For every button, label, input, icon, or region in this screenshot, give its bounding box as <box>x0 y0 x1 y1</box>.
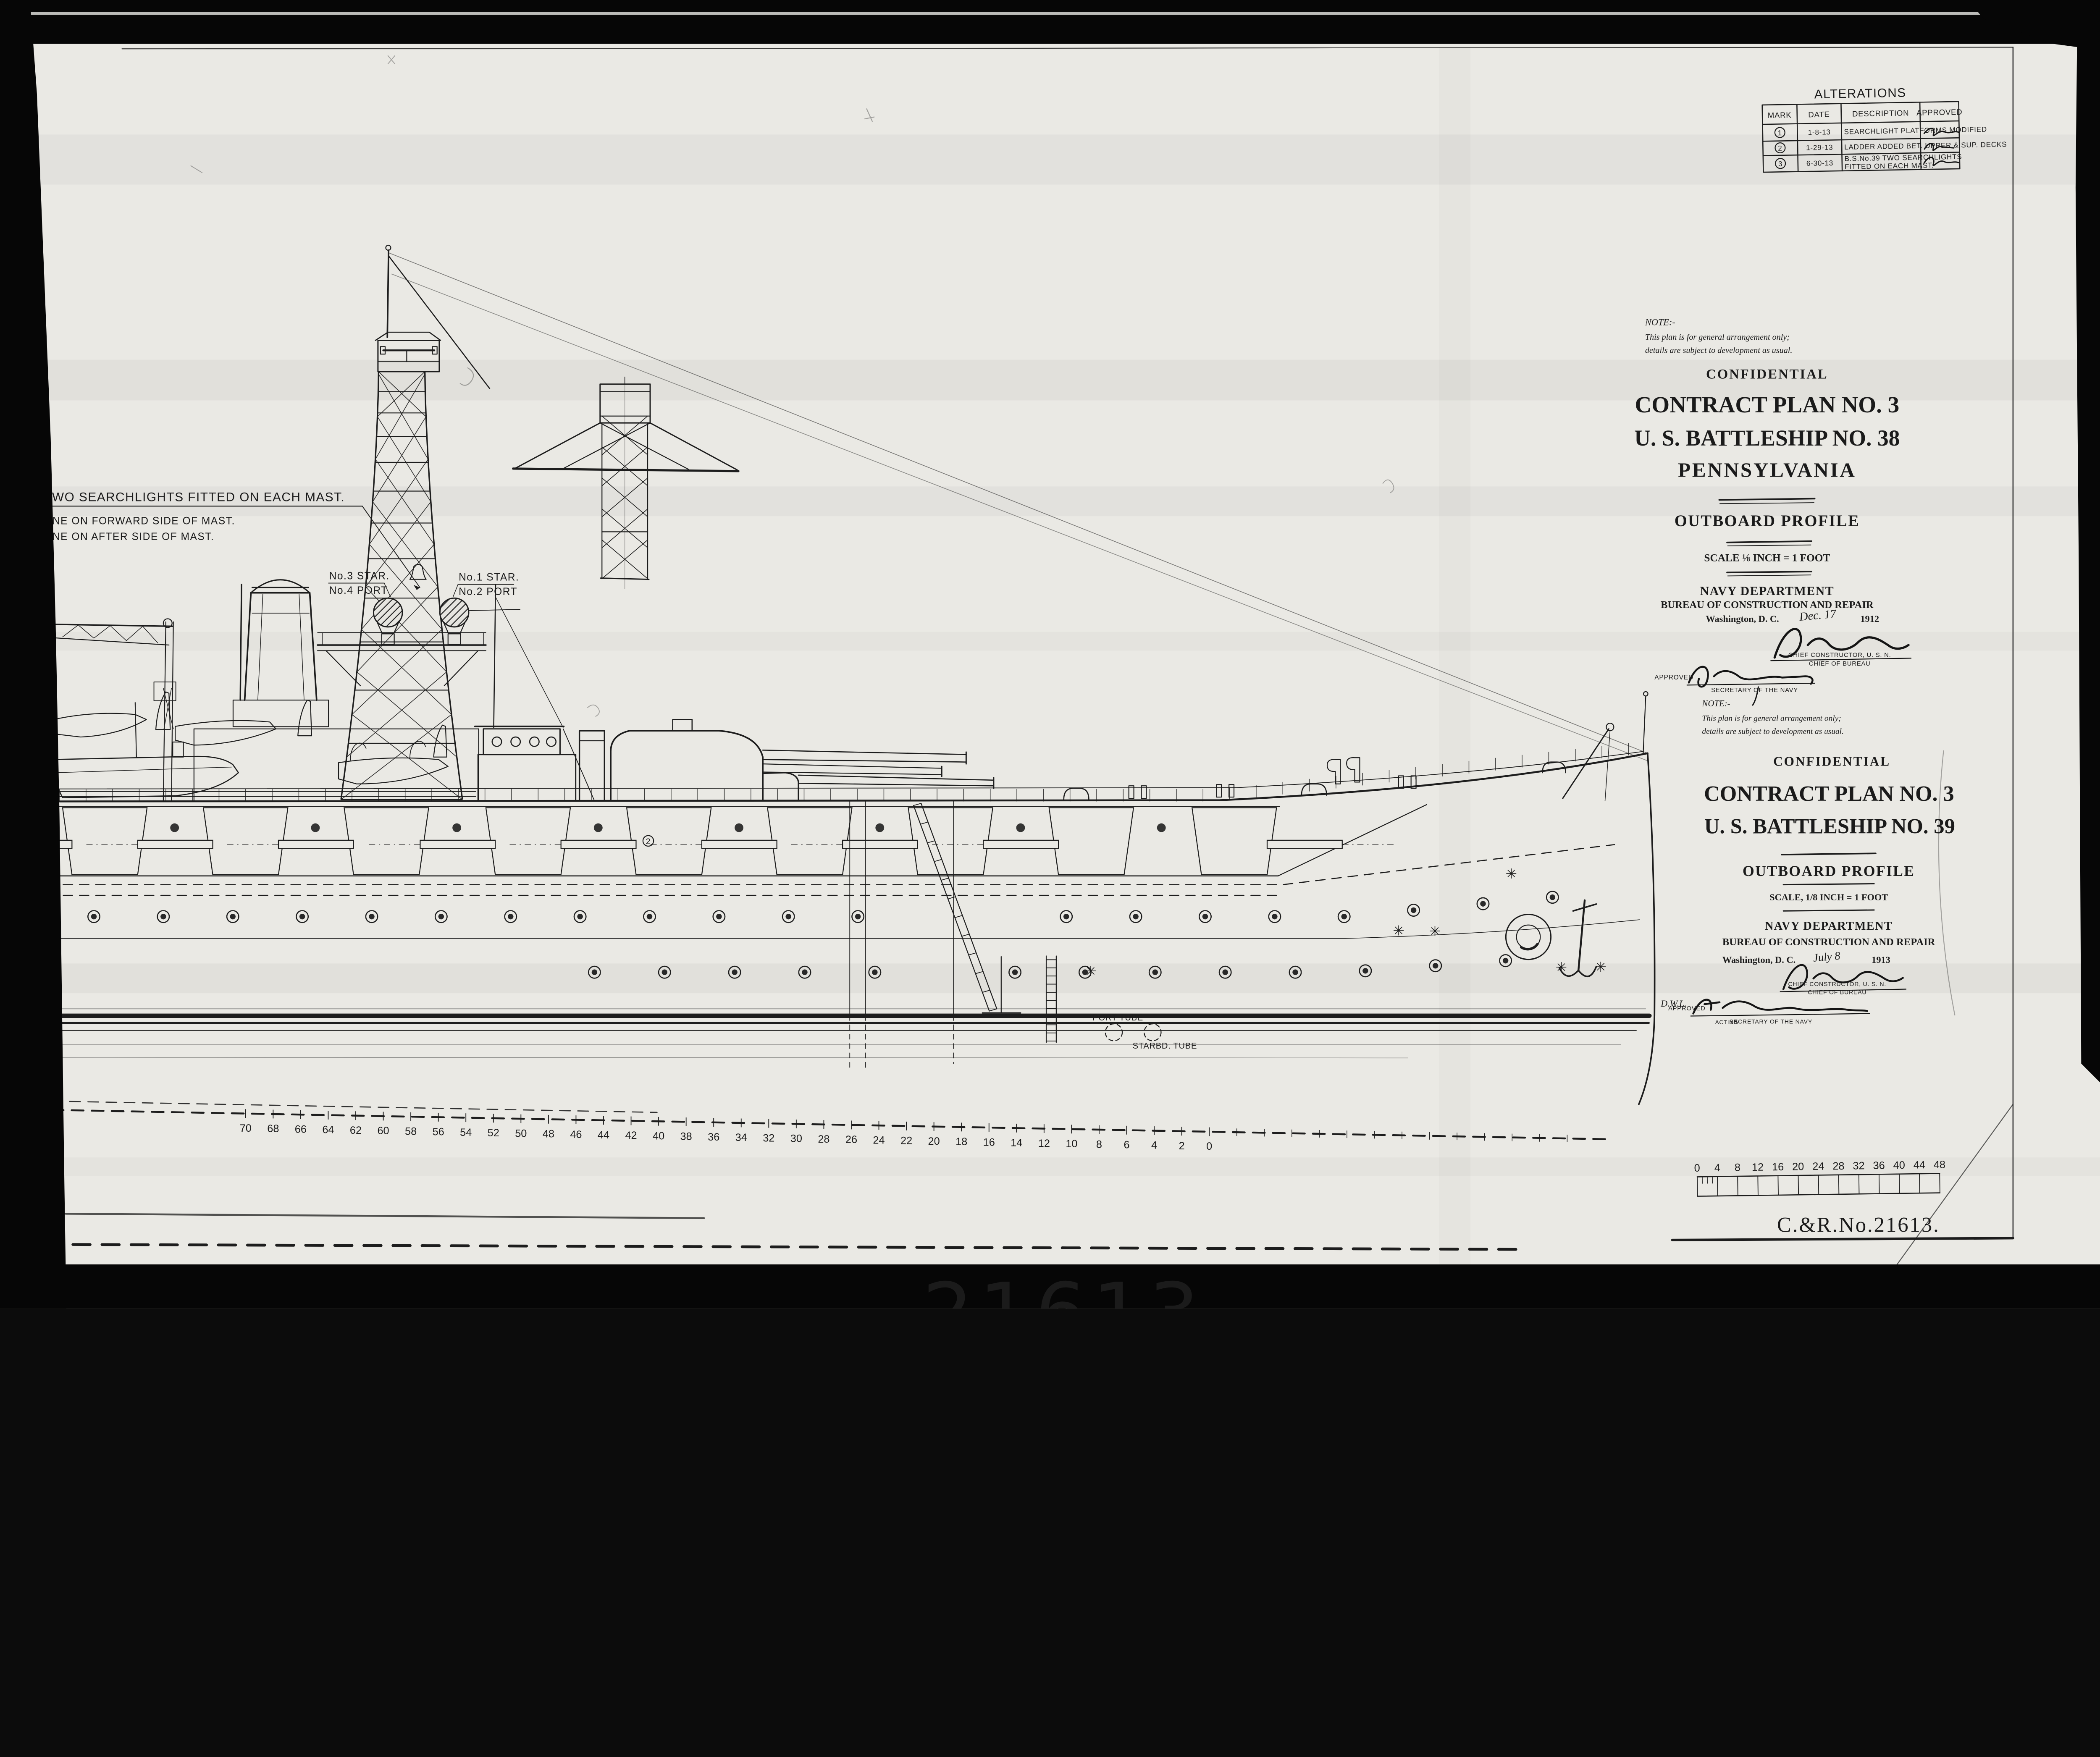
city-39: Washington, D. C. <box>1722 955 1795 965</box>
chief1-38: CHIEF CONSTRUCTOR, U. S. N. <box>1788 652 1891 658</box>
gunport-dot <box>452 823 461 832</box>
porthole-center <box>732 970 737 975</box>
porthole-center <box>716 914 722 919</box>
casemate-gun-barrel <box>983 840 1058 848</box>
mast-label-no4: No.4 PORT <box>329 585 388 596</box>
top-border <box>0 0 2100 44</box>
svg-text:✳: ✳ <box>1595 959 1606 975</box>
porthole-center <box>508 914 513 919</box>
station-number: 8 <box>1096 1138 1102 1150</box>
scanned-blueprint-sheet: 7068666462605856545250484644424038363432… <box>0 0 2100 1309</box>
note-line2-39: details are subject to development as us… <box>1702 727 1843 736</box>
svg-text:✳: ✳ <box>1506 866 1517 882</box>
station-number: 0 <box>1206 1141 1212 1152</box>
station-number: 60 <box>377 1125 389 1137</box>
name-pennsylvania: PENNSYLVANIA <box>1678 458 1856 481</box>
dept-39: NAVY DEPARTMENT <box>1765 920 1893 933</box>
station-number: 56 <box>433 1126 444 1138</box>
porthole-center <box>230 914 236 919</box>
station-number: 14 <box>1011 1137 1022 1149</box>
scale-number: 8 <box>1735 1162 1740 1173</box>
dept-38: NAVY DEPARTMENT <box>1700 584 1834 598</box>
alterations-title: ALTERATIONS <box>1814 86 1906 102</box>
svg-text:✳: ✳ <box>1085 963 1096 979</box>
porthole-center <box>592 970 597 975</box>
station-number: 20 <box>928 1135 940 1147</box>
note-heading-38: NOTE:- <box>1645 317 1675 328</box>
scale-number: 20 <box>1792 1161 1804 1172</box>
svg-text:1: 1 <box>1778 128 1782 137</box>
porthole-center <box>647 914 652 919</box>
casemate-gun-barrel <box>1267 840 1342 848</box>
gunport-dot <box>594 823 603 832</box>
port-tube-label: PORT TUBE <box>1092 1013 1143 1023</box>
note-line1-38: This plan is for general arrangement onl… <box>1645 333 1790 342</box>
casemate-gun-barrel <box>843 840 918 848</box>
station-number: 66 <box>295 1123 307 1135</box>
svg-text:FITTED ON EACH MAST.: FITTED ON EACH MAST. <box>1845 161 1934 171</box>
scale-tick <box>1940 1173 1940 1193</box>
plan-38: CONTRACT PLAN NO. 3 <box>1635 392 1900 417</box>
scale-tick <box>1859 1175 1859 1194</box>
porthole-center <box>802 970 807 975</box>
svg-text:✳: ✳ <box>1556 960 1567 976</box>
porthole-center <box>1433 963 1438 968</box>
svg-text:3: 3 <box>1778 160 1783 168</box>
city-38: Washington, D. C. <box>1706 614 1779 624</box>
porthole-center <box>438 914 444 919</box>
station-number: 68 <box>267 1123 279 1135</box>
station-number: 48 <box>543 1128 554 1140</box>
station-number: 50 <box>515 1128 527 1139</box>
station-number: 16 <box>983 1136 995 1148</box>
station-number: 32 <box>763 1132 774 1144</box>
porthole-center <box>1550 894 1555 900</box>
year-39: 1913 <box>1872 955 1890 965</box>
station-number: 2 <box>1179 1140 1185 1152</box>
profile-39: OUTBOARD PROFILE <box>1743 863 1915 879</box>
porthole-center <box>1152 970 1158 975</box>
svg-text:6-30-13: 6-30-13 <box>1806 159 1834 168</box>
porthole-center <box>160 914 166 919</box>
svg-text:1-8-13: 1-8-13 <box>1808 128 1831 136</box>
scale-number: 32 <box>1853 1160 1865 1172</box>
station-number: 18 <box>955 1136 967 1148</box>
searchlight-note-line2: ONE ON FORWARD SIDE OF MAST. <box>44 516 235 527</box>
station-number: 38 <box>680 1131 692 1143</box>
bureau-39: BUREAU OF CONSTRUCTION AND REPAIR <box>1722 936 1935 948</box>
porthole-center <box>1480 901 1486 906</box>
svg-text:2: 2 <box>1778 144 1782 152</box>
mast-label-no3: No.3 STAR. <box>329 571 390 582</box>
porthole-center <box>1411 907 1416 913</box>
scale-number: 16 <box>1772 1161 1784 1173</box>
bureau-38: BUREAU OF CONSTRUCTION AND REPAIR <box>1661 599 1874 611</box>
profile-38: OUTBOARD PROFILE <box>1675 512 1860 530</box>
gunport-dot <box>170 823 179 832</box>
photo-number: 21613 <box>922 1266 1205 1309</box>
porthole-center <box>369 914 374 919</box>
station-number: 46 <box>570 1129 582 1141</box>
scale-number: 40 <box>1893 1159 1905 1171</box>
porthole-center <box>91 914 97 919</box>
porthole-center <box>1202 914 1208 919</box>
scale-tick <box>1879 1174 1879 1193</box>
scale-number: 28 <box>1832 1160 1845 1172</box>
gunport-dot <box>1016 823 1025 832</box>
station-number: 52 <box>488 1127 499 1139</box>
porthole-center <box>662 970 667 975</box>
scale-39: SCALE, 1/8 INCH = 1 FOOT <box>1769 892 1888 902</box>
year-38: 1912 <box>1860 614 1879 624</box>
porthole-center <box>1272 914 1277 919</box>
svg-text:2: 2 <box>646 837 651 846</box>
casemate-gun-barrel <box>561 840 636 848</box>
casemate-gun-barrel <box>420 840 495 848</box>
porthole-center <box>1362 968 1368 973</box>
scale-tick <box>1697 1177 1698 1196</box>
station-number: 10 <box>1066 1138 1077 1150</box>
scale-tick <box>1778 1176 1778 1195</box>
porthole-center <box>1222 970 1228 975</box>
station-number: 58 <box>405 1125 417 1137</box>
note-heading-39: NOTE:- <box>1701 698 1730 708</box>
note-line1-39: This plan is for general arrangement onl… <box>1702 714 1841 723</box>
station-number: 12 <box>1038 1138 1050 1149</box>
svg-text:✳: ✳ <box>1429 923 1441 939</box>
station-number: 54 <box>460 1127 472 1138</box>
scale-number: 44 <box>1914 1159 1926 1171</box>
confidential-39: CONFIDENTIAL <box>1773 754 1890 769</box>
chief1-39: CHIEF CONSTRUCTOR, U. S. N. <box>1788 981 1886 987</box>
ship-39: U. S. BATTLESHIP NO. 39 <box>1704 814 1955 838</box>
ship-38: U. S. BATTLESHIP NO. 38 <box>1634 425 1900 451</box>
porthole-center <box>577 914 583 919</box>
scale-tick <box>1717 1177 1718 1196</box>
porthole-center <box>1063 914 1069 919</box>
station-number: 26 <box>845 1134 857 1146</box>
casemate-gun-barrel <box>278 840 354 848</box>
scale-number: 4 <box>1714 1162 1720 1174</box>
porthole-center <box>1341 914 1347 919</box>
casemate-gun-barrel <box>702 840 777 848</box>
cr-number-stamp: C.&R.No.21613. <box>1777 1213 1940 1237</box>
porthole-center <box>1503 958 1508 963</box>
porthole-center <box>1133 914 1138 919</box>
svg-text:DATE: DATE <box>1808 110 1830 119</box>
svg-text:✳: ✳ <box>1393 923 1404 939</box>
porthole-center <box>1292 970 1298 975</box>
top-border-white-line <box>0 12 2100 15</box>
secretary-38: SECRETARY OF THE NAVY <box>1711 687 1798 694</box>
svg-text:MARK: MARK <box>1768 110 1792 120</box>
station-number: 62 <box>350 1125 362 1136</box>
scale-tick <box>1758 1176 1758 1195</box>
blueprint-svg: 7068666462605856545250484644424038363432… <box>0 0 2100 1309</box>
station-number: 34 <box>735 1132 747 1143</box>
starbd-tube-label: STARBD. TUBE <box>1133 1041 1197 1051</box>
scale-tick <box>1819 1175 1819 1194</box>
gunport-dot <box>311 823 320 832</box>
mast-label-no1: No.1 STAR. <box>459 572 519 583</box>
gunport-dot <box>1157 823 1166 832</box>
scale-tick <box>1839 1175 1839 1194</box>
scale-38: SCALE ⅛ INCH = 1 FOOT <box>1704 552 1830 564</box>
scale-number: 36 <box>1873 1160 1885 1172</box>
date-hand-39: July 8 <box>1813 949 1841 964</box>
porthole-center <box>855 914 861 919</box>
scale-number: 0 <box>1694 1162 1700 1174</box>
scale-tick <box>1738 1176 1738 1196</box>
secretary-39: SECRETARY OF THE NAVY <box>1730 1018 1812 1025</box>
porthole-center <box>872 970 877 975</box>
confidential-38: CONFIDENTIAL <box>1706 367 1828 382</box>
mast-label-no2: No.2 PORT <box>459 586 517 598</box>
station-number: 70 <box>240 1122 252 1134</box>
scale-tick <box>1899 1174 1900 1193</box>
scale-number: 12 <box>1752 1162 1764 1173</box>
station-number: 30 <box>790 1133 802 1145</box>
station-number: 24 <box>873 1134 885 1146</box>
scale-tick <box>1919 1174 1920 1193</box>
svg-text:DESCRIPTION: DESCRIPTION <box>1852 108 1909 118</box>
station-number: 40 <box>653 1130 664 1142</box>
station-number: 4 <box>1151 1140 1157 1151</box>
station-number: 36 <box>708 1131 719 1143</box>
gunport-dot <box>735 823 743 832</box>
scale-tick <box>1798 1175 1799 1195</box>
paper-background <box>0 0 2100 1309</box>
plan-39: CONTRACT PLAN NO. 3 <box>1704 782 1954 806</box>
scale-number: 48 <box>1934 1159 1946 1171</box>
approved-39: APPROVED <box>1668 1005 1706 1012</box>
gunport-dot <box>875 823 884 832</box>
svg-text:1-29-13: 1-29-13 <box>1806 143 1833 152</box>
station-number: 64 <box>322 1124 334 1136</box>
porthole-center <box>1012 970 1018 975</box>
station-number: 22 <box>900 1135 912 1147</box>
station-number: 28 <box>818 1133 829 1145</box>
porthole-center <box>299 914 305 919</box>
note-line2-38: details are subject to development as us… <box>1645 346 1793 355</box>
station-number: 42 <box>625 1130 637 1141</box>
chief2-39: CHIEF OF BUREAU <box>1808 989 1866 995</box>
scale-number: 24 <box>1812 1161 1824 1172</box>
station-number: 44 <box>598 1129 609 1141</box>
casemate-gun-barrel <box>138 840 213 848</box>
porthole-center <box>786 914 791 919</box>
svg-text:APPROVED: APPROVED <box>1916 108 1963 117</box>
searchlight-note-line1: TWO SEARCHLIGHTS FITTED ON EACH MAST. <box>44 490 345 504</box>
station-number: 6 <box>1123 1139 1129 1151</box>
searchlight-note-line3: ONE ON AFTER SIDE OF MAST. <box>44 531 214 543</box>
approved-38: APPROVED <box>1654 674 1693 681</box>
chief2-38: CHIEF OF BUREAU <box>1809 661 1871 667</box>
